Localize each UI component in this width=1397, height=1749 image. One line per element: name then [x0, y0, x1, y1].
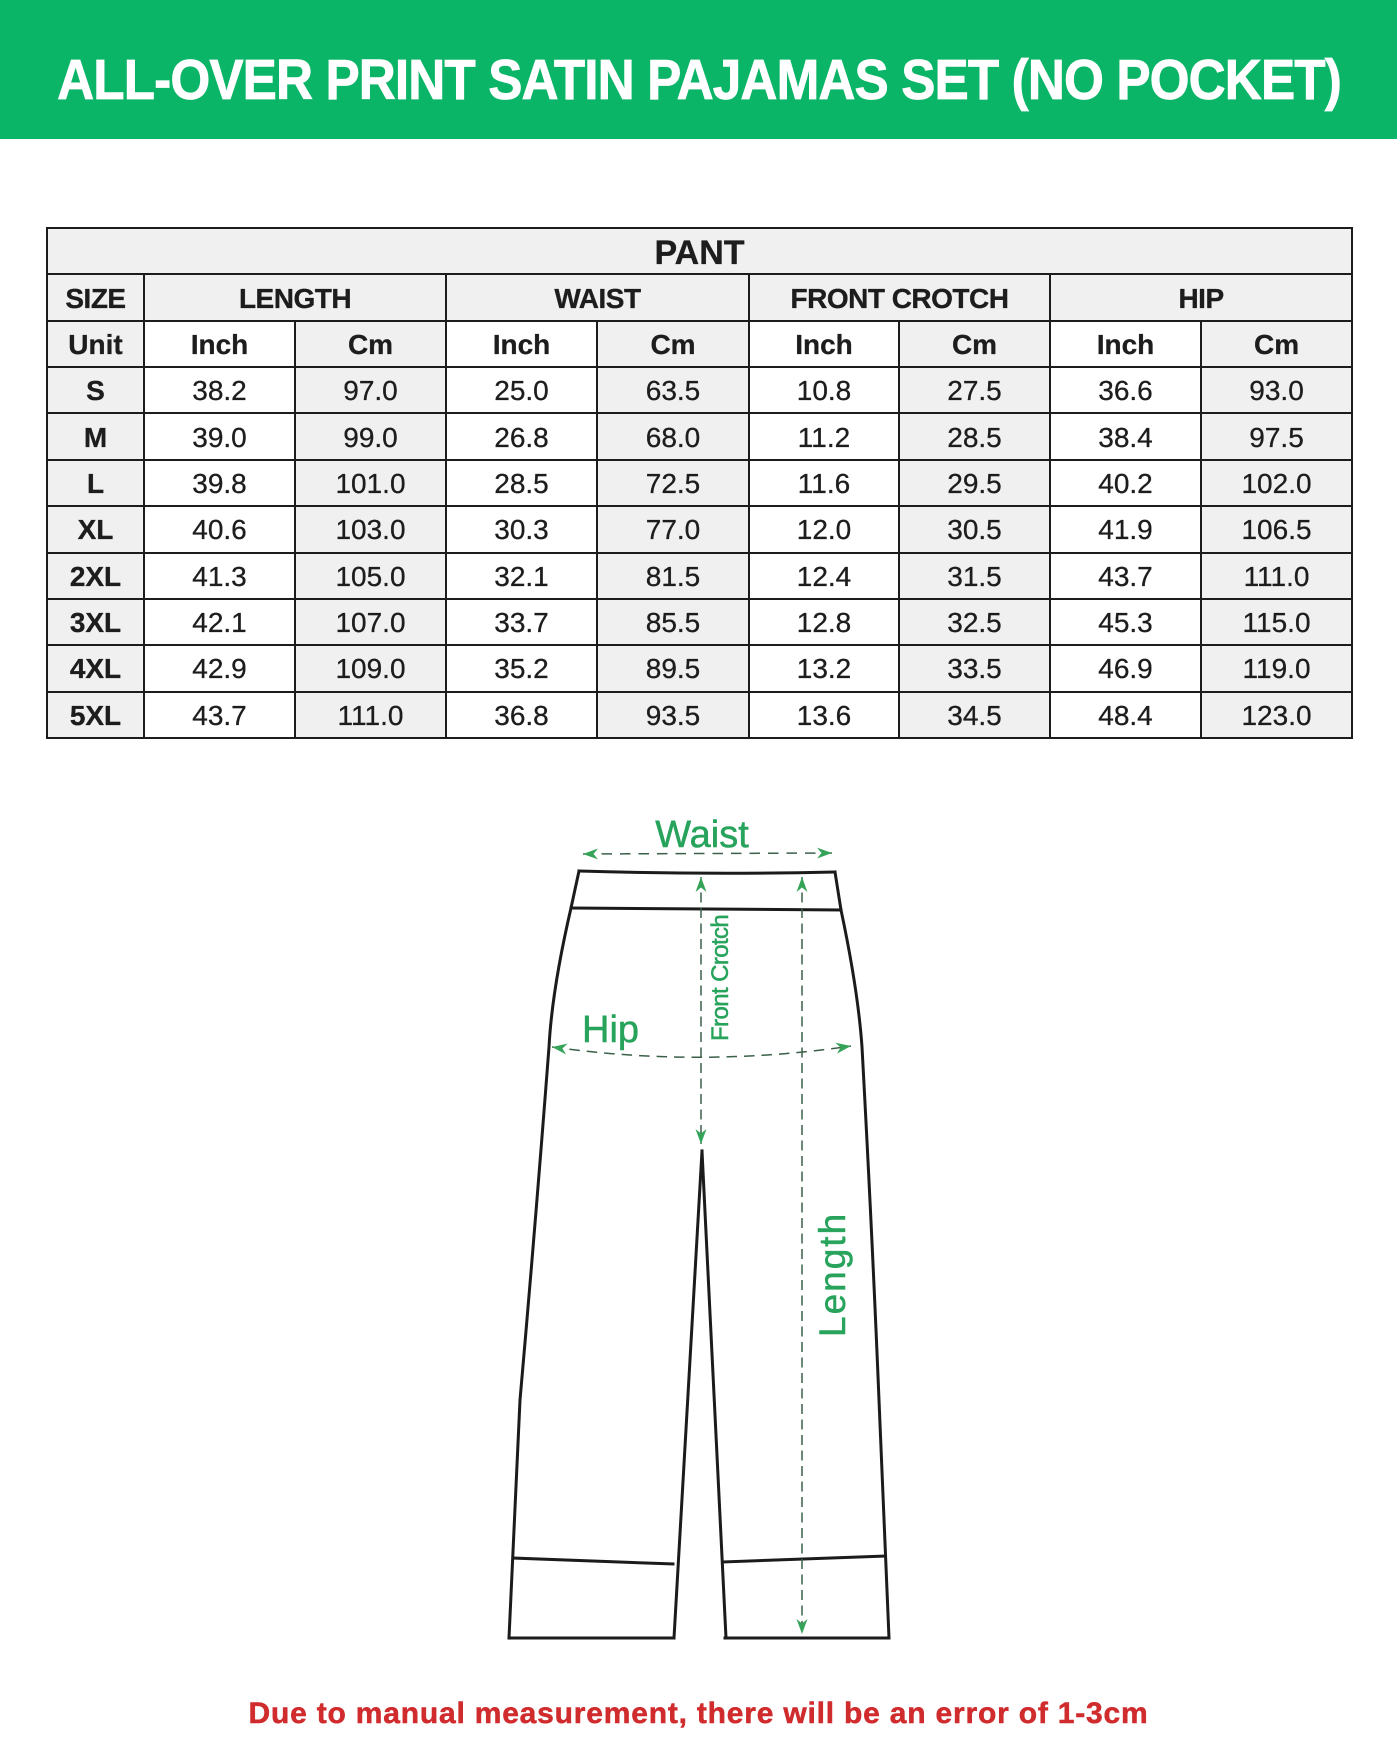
svg-text:Front Crotch: Front Crotch — [707, 915, 734, 1041]
svg-text:Waist: Waist — [655, 814, 749, 856]
svg-text:Length: Length — [812, 1212, 853, 1337]
svg-text:Hip: Hip — [582, 1009, 639, 1051]
